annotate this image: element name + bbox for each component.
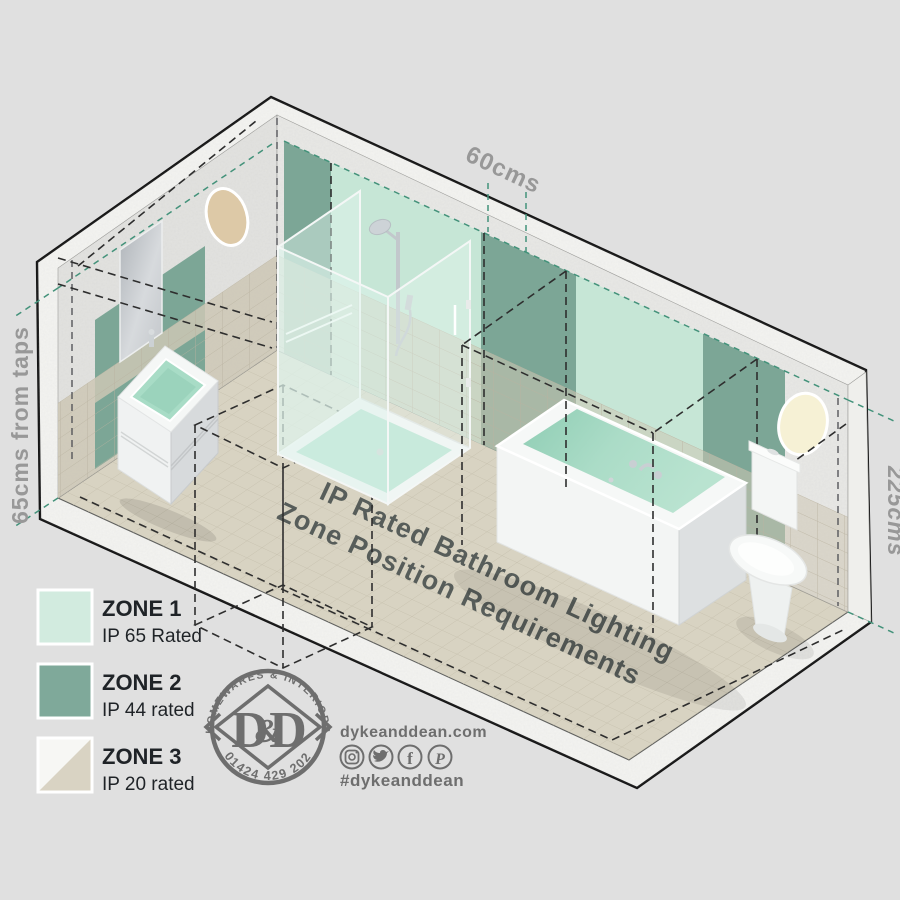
zone1-rating: IP 65 Rated [102,626,202,647]
zone2-rating: IP 44 rated [102,700,195,721]
legend: ZONE 1 IP 65 Rated ZONE 2 IP 44 rated ZO… [38,590,202,795]
bath-tap-right-icon [654,471,662,479]
legend-item-zone1: ZONE 1 IP 65 Rated [38,590,202,647]
svg-text:P: P [434,751,445,768]
legend-item-zone2: ZONE 2 IP 44 rated [38,664,195,721]
monogram-ampersand: & [255,713,282,750]
zone1-swatch [38,590,92,644]
dimension-taps-distance: 65cms from taps [7,326,33,524]
zone2-swatch [38,664,92,718]
hashtag-text: #dykeanddean [340,771,464,790]
zone3-rating: IP 20 rated [102,774,195,795]
zone2-label: ZONE 2 [102,670,181,695]
bathroom-zone-diagram: IP Rated Bathroom Lighting Zone Position… [0,0,900,900]
bath-overflow [609,478,614,483]
basin-tap-icon [149,334,154,347]
legend-item-zone3: ZONE 3 IP 20 rated [38,738,195,795]
zone1-label: ZONE 1 [102,596,181,621]
poster: IP Rated Bathroom Lighting Zone Position… [0,0,900,900]
basin-tap-head [149,329,155,335]
website-text: dykeanddean.com [340,724,487,741]
shower-hinge-top [466,300,471,309]
shower-hinge-bottom [466,378,471,387]
dimension-zone-height: 225cms [883,465,900,556]
svg-text:f: f [407,749,413,768]
zone3-label: ZONE 3 [102,744,181,769]
bath-tap-left-icon [629,460,637,468]
